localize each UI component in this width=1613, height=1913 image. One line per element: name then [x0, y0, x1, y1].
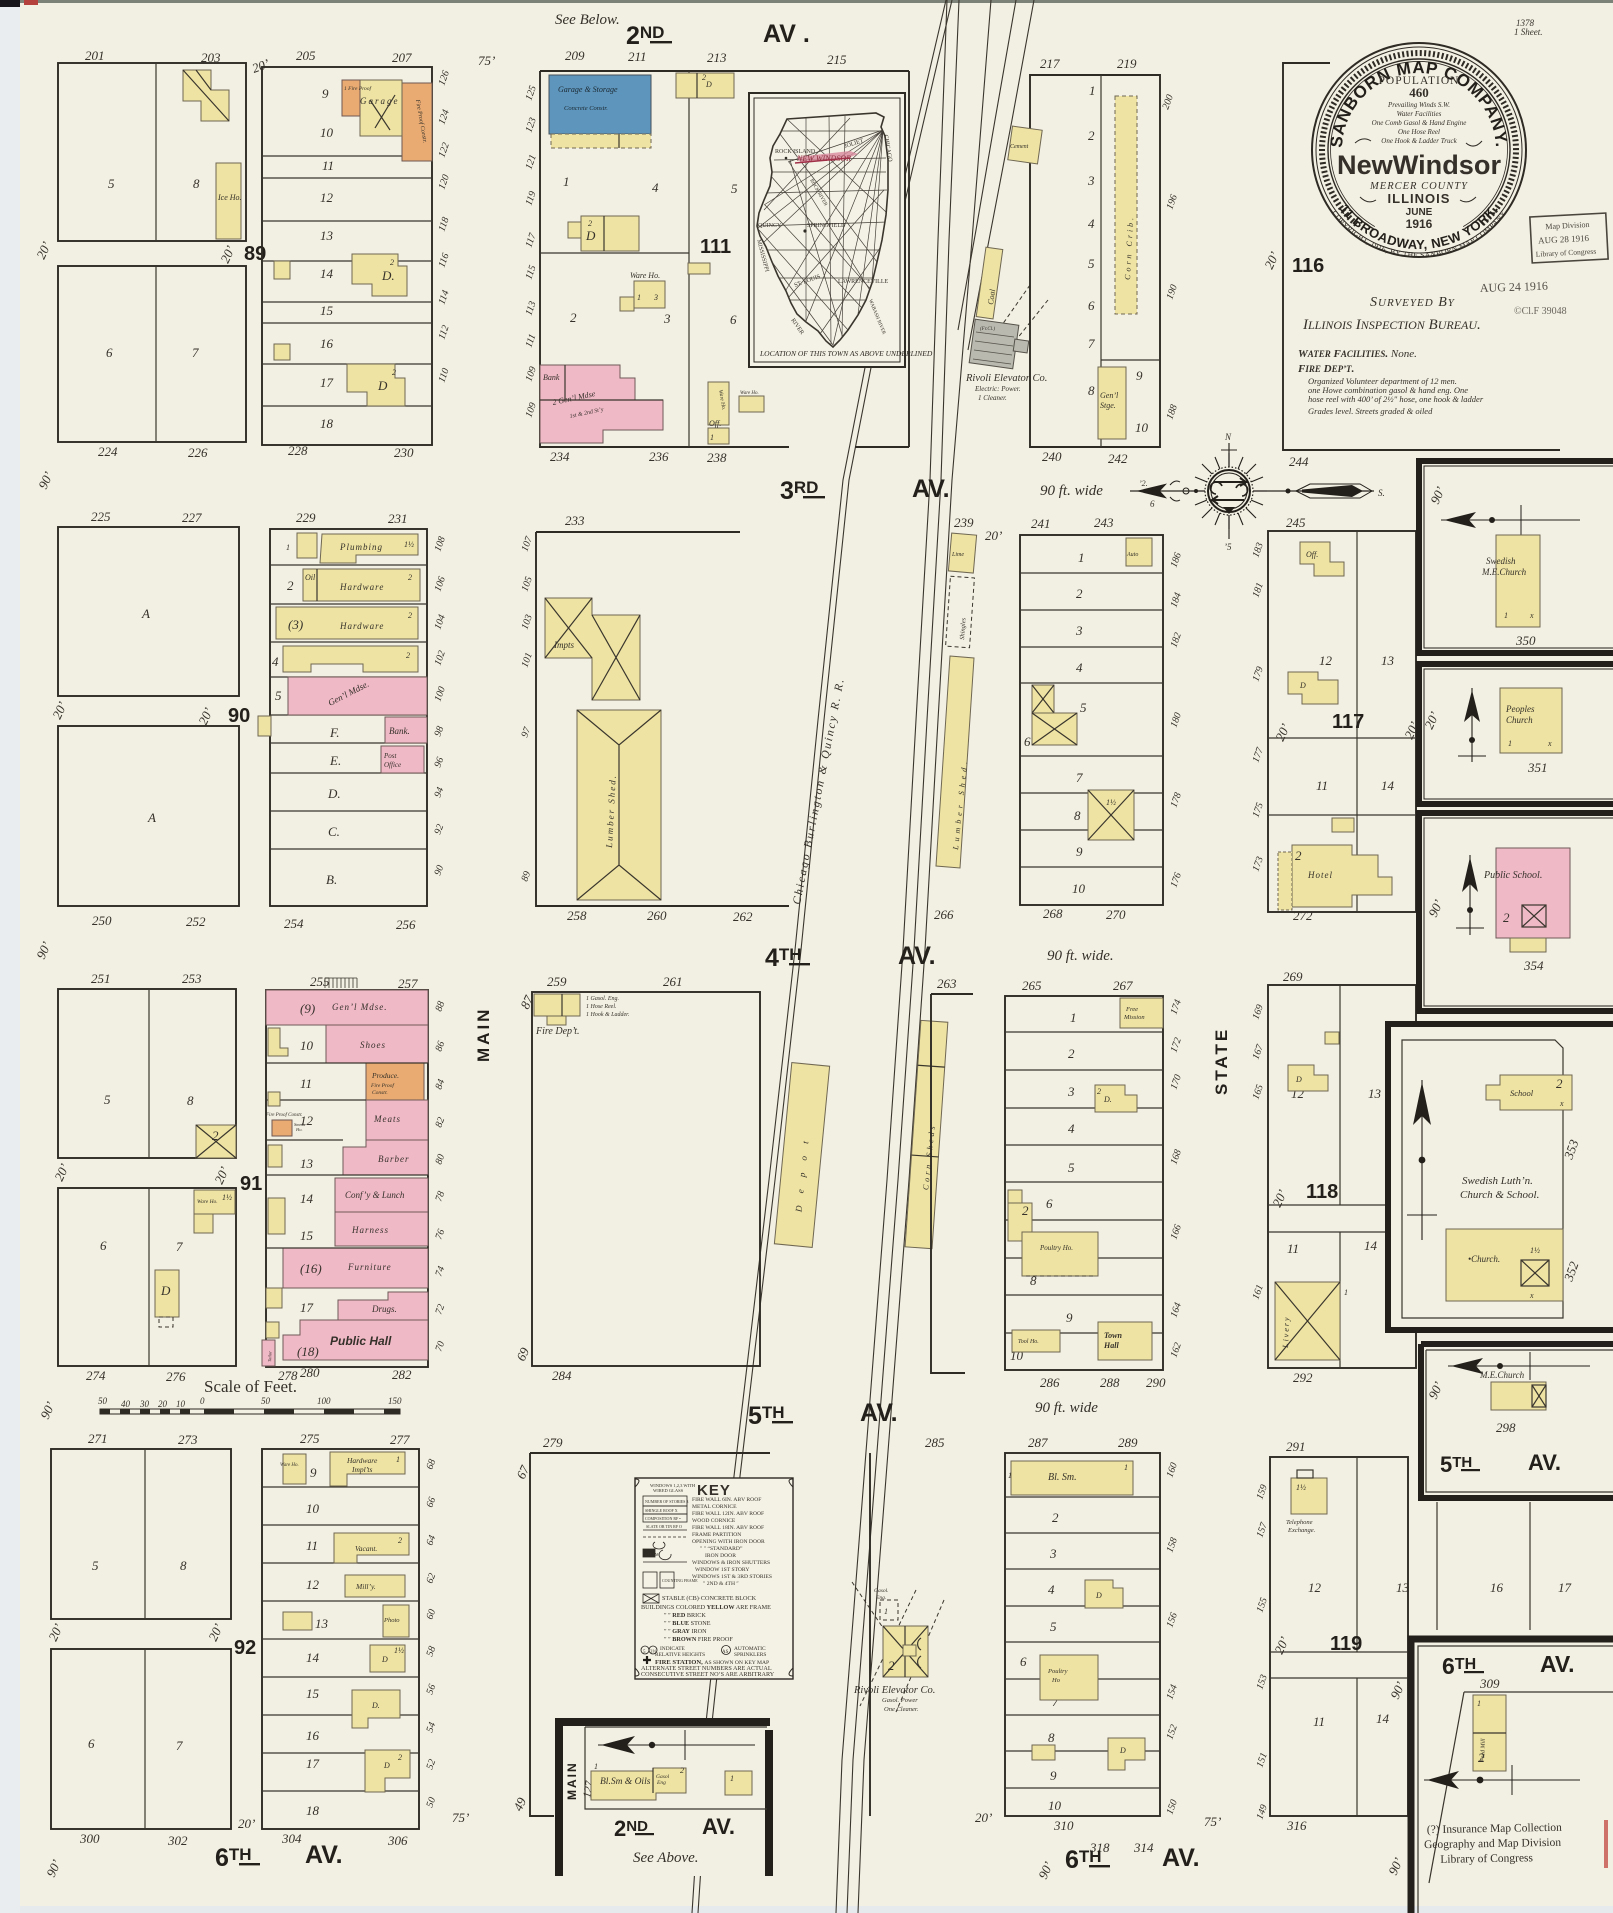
svg-text:226: 226: [188, 445, 208, 460]
svg-text:228: 228: [288, 443, 308, 458]
svg-text:6: 6: [106, 345, 113, 360]
svg-text:271: 271: [88, 1431, 108, 1446]
svg-text:1: 1: [1504, 611, 1508, 620]
svg-text:30: 30: [139, 1399, 150, 1409]
svg-text:Bank: Bank: [543, 373, 560, 382]
svg-text:10: 10: [306, 1501, 320, 1516]
svg-text:92: 92: [234, 1637, 256, 1659]
svg-text:1: 1: [710, 433, 714, 442]
svg-text:253: 253: [182, 971, 202, 986]
svg-text:hose reel with 400’ of 2½" hos: hose reel with 400’ of 2½" hose, one hoo…: [1308, 394, 1484, 404]
svg-text:117: 117: [1332, 711, 1364, 733]
svg-text:Grades level. Streets graded &: Grades level. Streets graded & oiled: [1308, 406, 1433, 416]
svg-text:AUG 24 1916: AUG 24 1916: [1480, 279, 1548, 295]
svg-text:227: 227: [182, 510, 202, 525]
svg-text:15: 15: [300, 1228, 314, 1243]
svg-text:9: 9: [1136, 368, 1143, 383]
svg-text:5: 5: [731, 181, 738, 196]
svg-text:40: 40: [121, 1399, 131, 1409]
svg-text:50: 50: [98, 1396, 108, 1406]
svg-text:3: 3: [1087, 173, 1095, 188]
svg-text:310: 310: [1053, 1818, 1074, 1833]
svg-text:119: 119: [1330, 1633, 1362, 1655]
svg-text:2: 2: [1295, 848, 1302, 863]
svg-text:Ware Ho.: Ware Ho.: [280, 1463, 299, 1468]
svg-text:236: 236: [649, 449, 669, 464]
svg-text:See Above.: See Above.: [633, 1850, 699, 1866]
svg-text:13: 13: [320, 228, 334, 243]
svg-text:100: 100: [317, 1396, 331, 1406]
svg-text:1: 1: [1008, 1471, 1012, 1480]
svg-text:252: 252: [186, 914, 206, 929]
svg-text:211: 211: [628, 49, 647, 64]
svg-text:2: 2: [588, 219, 592, 228]
svg-text:1 Hose Reel.: 1 Hose Reel.: [586, 1004, 617, 1010]
svg-text:AV.: AV.: [305, 1841, 343, 1869]
svg-text:276: 276: [166, 1369, 186, 1384]
svg-text:9: 9: [310, 1465, 317, 1480]
svg-text:M.E.Church: M.E.Church: [1479, 1370, 1525, 1380]
svg-text:Drugs.: Drugs.: [371, 1304, 397, 1314]
svg-text:5: 5: [275, 688, 282, 703]
svg-text:FIRE WALL 18IN. ABV ROOF: FIRE WALL 18IN. ABV ROOF: [692, 1525, 764, 1531]
svg-text:Public Hall: Public Hall: [330, 1334, 392, 1348]
svg-text:QUINCY: QUINCY: [758, 223, 782, 229]
svg-text:FIRE WALL 12IN. ABV ROOF: FIRE WALL 12IN. ABV ROOF: [692, 1511, 764, 1517]
svg-text:Exchange.: Exchange.: [1287, 1527, 1316, 1534]
svg-text:285: 285: [925, 1435, 945, 1450]
svg-text:AV.: AV.: [1540, 1651, 1575, 1677]
svg-text:One Cleaner.: One Cleaner.: [884, 1706, 919, 1713]
svg-text:10: 10: [176, 1399, 186, 1409]
svg-text:2: 2: [1052, 1510, 1059, 1525]
svg-text:203: 203: [201, 50, 221, 65]
svg-text:AS: AS: [722, 1650, 729, 1655]
svg-text:20’: 20’: [975, 1810, 992, 1825]
svg-text:90: 90: [228, 705, 250, 727]
svg-text:15: 15: [306, 1686, 320, 1701]
svg-text:286: 286: [1040, 1375, 1060, 1390]
svg-text:241: 241: [1031, 516, 1051, 531]
svg-text:256: 256: [396, 917, 416, 932]
svg-text:WINDOWS & IRON SHUTTERS: WINDOWS & IRON SHUTTERS: [692, 1560, 770, 1566]
svg-text:Ho: Ho: [1051, 1677, 1061, 1684]
svg-text:207: 207: [392, 50, 412, 65]
svg-text:2: 2: [1478, 1750, 1485, 1765]
svg-text:287: 287: [1028, 1435, 1048, 1450]
svg-text:Hall: Hall: [1103, 1341, 1119, 1350]
svg-text:SPRINKLERS: SPRINKLERS: [734, 1652, 766, 1658]
svg-text:150: 150: [388, 1396, 402, 1406]
svg-text:WATER FACILITIES. None.: WATER FACILITIES. None.: [1298, 348, 1417, 360]
svg-text:17: 17: [1558, 1580, 1572, 1595]
svg-text:269: 269: [1283, 969, 1303, 984]
svg-text:1: 1: [1070, 1010, 1077, 1025]
svg-text:239: 239: [954, 515, 974, 530]
svg-text:2: 2: [398, 1753, 402, 1762]
svg-text:255: 255: [310, 974, 330, 989]
svg-text:Gasol. Power: Gasol. Power: [882, 1697, 918, 1704]
svg-text:7: 7: [1076, 770, 1083, 785]
svg-text:2: 2: [392, 368, 396, 377]
svg-text:Hardware: Hardware: [346, 1456, 378, 1465]
svg-text:2: 2: [1068, 1046, 1075, 1061]
svg-text:224: 224: [98, 444, 118, 459]
svg-text:205: 205: [296, 48, 316, 63]
svg-text:265: 265: [1022, 978, 1042, 993]
svg-text:Ware Ho.: Ware Ho.: [740, 391, 759, 396]
svg-text:AV.: AV.: [912, 475, 950, 503]
svg-text:284: 284: [552, 1368, 572, 1383]
svg-text:4: 4: [652, 180, 659, 195]
svg-text:x: x: [1559, 1099, 1564, 1108]
svg-text:Fire Dep’t.: Fire Dep’t.: [535, 1026, 580, 1037]
svg-text:6: 6: [1046, 1196, 1053, 1211]
svg-text:Impts: Impts: [553, 640, 574, 650]
svg-text:Ho.: Ho.: [295, 1127, 303, 1132]
svg-text:D: D: [160, 1283, 171, 1298]
svg-text:1: 1: [1344, 1288, 1348, 1297]
svg-text:Barber: Barber: [378, 1154, 410, 1164]
svg-text:Office: Office: [384, 761, 401, 769]
svg-text:1: 1: [396, 1455, 400, 1464]
svg-text:1: 1: [884, 1607, 888, 1616]
svg-text:260: 260: [647, 908, 667, 923]
svg-text:10: 10: [1135, 420, 1149, 435]
svg-text:2: 2: [408, 573, 412, 582]
svg-text:″ ″ RED BRICK: ″ ″ RED BRICK: [664, 1612, 706, 1619]
svg-text:304: 304: [281, 1831, 302, 1846]
svg-text:Library of Congress: Library of Congress: [1440, 1852, 1533, 1866]
svg-text:MAIN: MAIN: [474, 1007, 493, 1062]
svg-text:1½: 1½: [1106, 798, 1116, 807]
svg-text:11: 11: [1316, 778, 1328, 793]
svg-text:1: 1: [730, 1774, 734, 1783]
svg-text:Swedish Luth’n.: Swedish Luth’n.: [1462, 1175, 1533, 1187]
svg-text:D.: D.: [381, 268, 395, 283]
svg-text:ILLINOIS: ILLINOIS: [1388, 191, 1451, 206]
svg-text:16: 16: [320, 336, 334, 351]
svg-text:250: 250: [92, 913, 112, 928]
svg-text:13: 13: [1368, 1086, 1382, 1101]
svg-text:D: D: [381, 1655, 388, 1664]
svg-text:12: 12: [1319, 653, 1333, 668]
svg-text:E.: E.: [329, 753, 341, 768]
svg-text:D: D: [377, 378, 388, 393]
svg-text:AV.: AV.: [1528, 1450, 1561, 1475]
svg-text:Rivoli Elevator Co.: Rivoli Elevator Co.: [965, 373, 1047, 384]
svg-text:8: 8: [180, 1558, 187, 1573]
svg-text:111: 111: [700, 236, 731, 258]
svg-text:Harness: Harness: [351, 1225, 389, 1235]
svg-text:7: 7: [1088, 336, 1095, 351]
svg-text:Post: Post: [383, 752, 398, 760]
svg-text:11: 11: [306, 1538, 318, 1553]
svg-text:7: 7: [176, 1738, 183, 1753]
svg-text:″ ″ BLUE STONE: ″ ″ BLUE STONE: [664, 1620, 711, 1627]
svg-text:D: D: [1295, 1075, 1302, 1084]
svg-text:Church: Church: [1506, 715, 1533, 725]
svg-text:Telephone: Telephone: [1286, 1519, 1313, 1526]
svg-text:AV.: AV.: [898, 942, 936, 970]
svg-text:Rivoli Elevator Co.: Rivoli Elevator Co.: [853, 1685, 935, 1696]
svg-text:10: 10: [320, 125, 334, 140]
svg-text:Conf’y & Lunch: Conf’y & Lunch: [345, 1190, 405, 1200]
svg-text:x: x: [1529, 611, 1534, 620]
svg-text:Stge.: Stge.: [1100, 401, 1116, 410]
svg-text:306: 306: [387, 1833, 408, 1848]
svg-text:Livery: Livery: [1281, 1315, 1291, 1349]
svg-text:277: 277: [390, 1432, 410, 1447]
svg-text:233: 233: [565, 513, 585, 528]
svg-text:’5: ’5: [1224, 542, 1232, 552]
svg-text:SURVEYED BY: SURVEYED BY: [1370, 295, 1456, 310]
svg-text:CONSECUTIVE STREET NO’S ARE AR: CONSECUTIVE STREET NO’S ARE ARBITRARY: [641, 1671, 775, 1678]
svg-text:COMPOSITION RF •: COMPOSITION RF •: [645, 1516, 681, 1521]
svg-text:275: 275: [300, 1431, 320, 1446]
svg-text:7: 7: [176, 1239, 183, 1254]
svg-text:240: 240: [1042, 449, 1062, 464]
svg-text:See Below.: See Below.: [555, 12, 620, 28]
svg-text:Gen’l: Gen’l: [1100, 391, 1119, 400]
svg-text:SHINGLE ROOF X: SHINGLE ROOF X: [645, 1508, 678, 1513]
svg-text:1½: 1½: [1296, 1483, 1306, 1492]
svg-text:Bank.: Bank.: [389, 726, 410, 736]
svg-text:274: 274: [86, 1368, 106, 1383]
svg-text:14: 14: [320, 266, 334, 281]
svg-text:1: 1: [594, 1762, 598, 1771]
svg-text:6: 6: [1150, 499, 1155, 509]
svg-text:METAL CORNICE: METAL CORNICE: [692, 1504, 737, 1510]
svg-text:75’: 75’: [452, 1810, 469, 1825]
svg-text:1½: 1½: [394, 1646, 404, 1655]
svg-text:302: 302: [167, 1833, 188, 1848]
svg-text:8: 8: [1074, 808, 1081, 823]
svg-text:D: D: [585, 228, 596, 243]
svg-text:©Cl.F 39048: ©Cl.F 39048: [1514, 306, 1567, 317]
svg-text:5: 5: [104, 1092, 111, 1107]
svg-text:FIRE WALL 6IN. ABV ROOF: FIRE WALL 6IN. ABV ROOF: [692, 1497, 761, 1503]
svg-text:Eng.: Eng.: [875, 1595, 886, 1601]
svg-text:351: 351: [1527, 760, 1548, 775]
svg-text:5: 5: [108, 176, 115, 191]
svg-text:219: 219: [1117, 56, 1137, 71]
svg-text:243: 243: [1094, 515, 1114, 530]
svg-text:(3): (3): [288, 617, 303, 632]
svg-text:Photo: Photo: [383, 1617, 400, 1624]
svg-text:OPENING WITH IRON DOOR: OPENING WITH IRON DOOR: [692, 1539, 765, 1545]
svg-text:Lime: Lime: [951, 552, 964, 558]
svg-text:6: 6: [1020, 1654, 1027, 1669]
svg-text:266: 266: [934, 907, 954, 922]
svg-text:9: 9: [1050, 1768, 1057, 1783]
svg-text:NewWindsor: NewWindsor: [1337, 150, 1501, 180]
svg-text:Vacant.: Vacant.: [355, 1544, 377, 1553]
svg-text:Tailor: Tailor: [267, 1351, 273, 1362]
svg-text:354: 354: [1523, 958, 1544, 973]
svg-text:300: 300: [79, 1831, 100, 1846]
svg-text:Ware Ho.: Ware Ho.: [630, 271, 660, 280]
svg-text:Hotel: Hotel: [1307, 870, 1333, 880]
svg-text:230: 230: [394, 445, 414, 460]
svg-text:x: x: [1529, 1291, 1534, 1300]
svg-text:Produce.: Produce.: [371, 1071, 399, 1080]
svg-text:″ ″ BROWN FIRE PROOF: ″ ″ BROWN FIRE PROOF: [664, 1636, 733, 1643]
svg-text:17: 17: [320, 375, 334, 390]
svg-text:6: 6: [730, 312, 737, 327]
svg-text:14: 14: [306, 1650, 320, 1665]
svg-text:2: 2: [1076, 586, 1083, 601]
svg-text:LOCATION OF THIS TOWN AS ABOVE: LOCATION OF THIS TOWN AS ABOVE UNDERLINE…: [759, 349, 933, 358]
svg-text:Eng: Eng: [656, 1780, 666, 1786]
svg-text:292: 292: [1293, 1370, 1313, 1385]
svg-text:460: 460: [1409, 85, 1429, 100]
svg-text:WINDOW 1ST STORY: WINDOW 1ST STORY: [695, 1567, 749, 1573]
svg-text:RELATIVE HEIGHTS: RELATIVE HEIGHTS: [655, 1652, 705, 1658]
svg-text:One Hose Reel: One Hose Reel: [1398, 128, 1440, 136]
svg-text:244: 244: [1289, 454, 1309, 469]
svg-text:Off.: Off.: [709, 419, 721, 428]
svg-text:Water Facilities: Water Facilities: [1397, 110, 1442, 118]
svg-text:90 ft. wide: 90 ft. wide: [1035, 1400, 1098, 1416]
svg-text:(Fr.Cl.): (Fr.Cl.): [980, 327, 995, 332]
svg-text:20’: 20’: [985, 528, 1002, 543]
svg-text:209: 209: [565, 48, 585, 63]
svg-text:Mission: Mission: [1123, 1014, 1145, 1021]
svg-text:6: 6: [88, 1736, 95, 1751]
svg-text:213: 213: [707, 50, 727, 65]
svg-text:225: 225: [91, 509, 111, 524]
svg-text:13: 13: [300, 1156, 314, 1171]
svg-text:9: 9: [1076, 844, 1083, 859]
svg-text:288: 288: [1100, 1375, 1120, 1390]
svg-text:9: 9: [322, 86, 329, 101]
svg-text:258: 258: [567, 908, 587, 923]
svg-text:8: 8: [1088, 383, 1095, 398]
svg-text:Bl.Sm & Oils: Bl.Sm & Oils: [600, 1777, 651, 1787]
svg-text:4: 4: [1088, 216, 1095, 231]
svg-text:Public School.: Public School.: [1483, 870, 1542, 881]
svg-text:D.: D.: [1103, 1095, 1112, 1104]
svg-text:20: 20: [158, 1399, 168, 1409]
svg-text:262: 262: [733, 909, 753, 924]
svg-text:2: 2: [408, 611, 412, 620]
svg-text:118: 118: [1306, 1181, 1338, 1203]
svg-text:11: 11: [1287, 1241, 1299, 1256]
svg-text:2: 2: [1556, 1076, 1563, 1091]
svg-text:Hardware: Hardware: [339, 582, 384, 592]
svg-text:279: 279: [543, 1435, 563, 1450]
svg-text:90 ft. wide: 90 ft. wide: [1040, 483, 1103, 499]
svg-text:1: 1: [1078, 550, 1085, 565]
svg-text:AV.: AV.: [702, 1814, 735, 1839]
svg-text:1 Fire Proof: 1 Fire Proof: [344, 85, 373, 92]
svg-text:1½: 1½: [404, 540, 414, 549]
svg-text:1 Hook & Ladder.: 1 Hook & Ladder.: [586, 1012, 629, 1018]
svg-text:75’: 75’: [478, 53, 495, 68]
svg-text:309: 309: [1479, 1676, 1500, 1691]
svg-text:″ ″ “STANDARD”: ″ ″ “STANDARD”: [700, 1545, 743, 1552]
svg-text:Poultry Ho.: Poultry Ho.: [1039, 1244, 1073, 1252]
svg-text:Plumbing: Plumbing: [339, 542, 383, 552]
svg-text:259: 259: [547, 974, 567, 989]
svg-text:1½: 1½: [222, 1193, 232, 1202]
svg-text:2: 2: [570, 310, 577, 325]
svg-text:116: 116: [1292, 255, 1324, 277]
svg-text:4: 4: [272, 654, 279, 669]
svg-text:13: 13: [1396, 1580, 1410, 1595]
svg-text:WIRED GLASS: WIRED GLASS: [653, 1488, 684, 1493]
svg-text:217: 217: [1040, 56, 1060, 71]
svg-text:242: 242: [1108, 451, 1128, 466]
svg-text:D: D: [1095, 1591, 1102, 1600]
svg-text:229: 229: [296, 510, 316, 525]
svg-text:245: 245: [1286, 515, 1306, 530]
svg-text:11: 11: [1313, 1714, 1325, 1729]
svg-text:12: 12: [1308, 1580, 1322, 1595]
svg-text:Tool Ho.: Tool Ho.: [1018, 1339, 1039, 1345]
svg-text:1: 1: [286, 543, 290, 552]
svg-text:Auto: Auto: [1126, 552, 1138, 558]
svg-text:IRON DOOR: IRON DOOR: [705, 1553, 736, 1559]
svg-text:14: 14: [1376, 1711, 1390, 1726]
svg-text:2: 2: [390, 258, 394, 267]
svg-text:LAWRENCEVILLE: LAWRENCEVILLE: [838, 279, 889, 285]
svg-text:268: 268: [1043, 906, 1063, 921]
svg-text:Furniture: Furniture: [347, 1262, 392, 1272]
svg-text:Ice Ho.: Ice Ho.: [217, 193, 242, 202]
svg-text:1: 1: [1508, 739, 1512, 748]
svg-text:Bl. Sm.: Bl. Sm.: [1048, 1472, 1077, 1483]
svg-text:10: 10: [300, 1038, 314, 1053]
svg-text:x: x: [1547, 739, 1552, 748]
svg-text:B.: B.: [326, 872, 337, 887]
svg-text:2: 2: [212, 1128, 219, 1143]
svg-text:17: 17: [306, 1756, 320, 1771]
svg-text:1 Cleaner.: 1 Cleaner.: [978, 394, 1007, 402]
svg-text:A: A: [147, 810, 156, 825]
svg-text:3: 3: [1067, 1084, 1075, 1099]
svg-text:261: 261: [663, 974, 683, 989]
svg-text:5: 5: [1080, 700, 1087, 715]
svg-text:•Church.: •Church.: [1468, 1254, 1500, 1264]
svg-text:5: 5: [1068, 1160, 1075, 1175]
svg-text:263: 263: [937, 976, 957, 991]
svg-text:Oil: Oil: [305, 573, 316, 582]
svg-text:251: 251: [91, 971, 111, 986]
svg-text:2: 2: [888, 1658, 895, 1673]
svg-text:(16): (16): [300, 1261, 322, 1276]
svg-text:Fire Proof: Fire Proof: [370, 1082, 395, 1089]
svg-text:3: 3: [1075, 623, 1083, 638]
svg-text:6: 6: [1024, 734, 1031, 749]
svg-text:17: 17: [300, 1300, 314, 1315]
svg-text:SLATE OR TIN RF O: SLATE OR TIN RF O: [646, 1524, 682, 1529]
svg-text:11: 11: [322, 158, 334, 173]
svg-text:1: 1: [1124, 1463, 1128, 1472]
svg-text:201: 201: [85, 48, 105, 63]
svg-text:314: 314: [1133, 1840, 1154, 1855]
svg-text:2: 2: [406, 651, 410, 660]
svg-text:8: 8: [193, 176, 200, 191]
svg-text:12: 12: [320, 190, 334, 205]
svg-text:20’: 20’: [238, 1816, 255, 1831]
svg-text:1: 1: [563, 174, 570, 189]
svg-text:9: 9: [1066, 1310, 1073, 1325]
svg-text:Concrete Constr.: Concrete Constr.: [564, 105, 608, 112]
svg-text:Garage & Storage: Garage & Storage: [558, 85, 618, 94]
svg-text:2: 2: [1088, 128, 1095, 143]
